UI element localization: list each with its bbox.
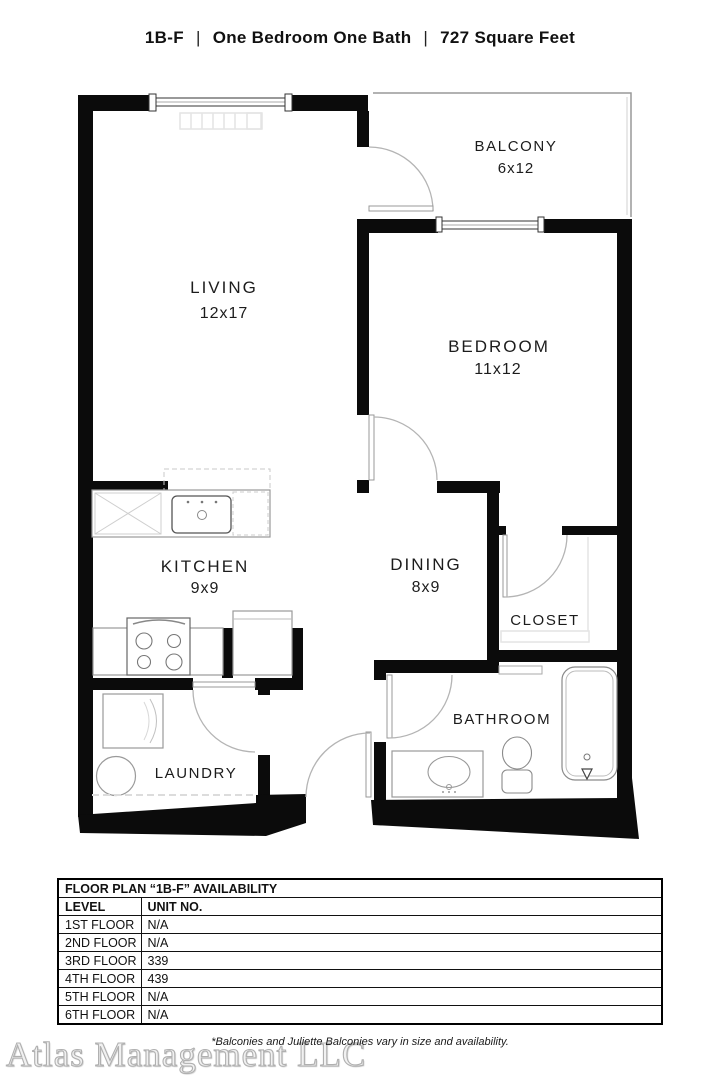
living-label: LIVING bbox=[190, 278, 258, 297]
balcony-disclaimer: *Balconies and Juliette Balconies vary i… bbox=[0, 1036, 720, 1048]
wall-segment bbox=[78, 678, 193, 690]
wall-segment bbox=[357, 219, 438, 233]
wall-segment bbox=[357, 111, 369, 147]
unit-cell: N/A bbox=[141, 1006, 662, 1025]
col-header-level: LEVEL bbox=[58, 898, 141, 916]
wall-segment bbox=[292, 628, 303, 678]
wall-segment bbox=[374, 742, 386, 800]
table-row: 6TH FLOOR N/A bbox=[58, 1006, 662, 1025]
bedroom-dims: 11x12 bbox=[474, 361, 521, 378]
wall-segment bbox=[290, 95, 368, 111]
unit-cell: N/A bbox=[141, 988, 662, 1006]
wall-segment bbox=[357, 219, 369, 415]
balcony-dims: 6x12 bbox=[498, 160, 535, 177]
wall-segment bbox=[374, 660, 499, 673]
living-dims: 12x17 bbox=[200, 305, 249, 322]
table-header-row: LEVEL UNIT NO. bbox=[58, 898, 662, 916]
water-heater bbox=[97, 757, 136, 796]
bathtub bbox=[562, 667, 617, 780]
laundry-label: LAUNDRY bbox=[155, 765, 238, 782]
entry-door bbox=[306, 732, 371, 797]
table-row: 3RD FLOOR 339 bbox=[58, 952, 662, 970]
bathroom-vanity bbox=[392, 751, 483, 797]
stove bbox=[93, 618, 223, 675]
level-cell: 2ND FLOOR bbox=[58, 934, 141, 952]
wall-segment bbox=[357, 480, 369, 493]
dining-dims: 8x9 bbox=[412, 579, 441, 596]
table-row: 2ND FLOOR N/A bbox=[58, 934, 662, 952]
level-cell: 3RD FLOOR bbox=[58, 952, 141, 970]
wall-segment bbox=[487, 481, 499, 660]
balcony-label: BALCONY bbox=[475, 138, 558, 155]
level-cell: 4TH FLOOR bbox=[58, 970, 141, 988]
wall-segment bbox=[617, 219, 632, 800]
col-header-unit: UNIT NO. bbox=[141, 898, 662, 916]
baseboard-heater bbox=[180, 113, 262, 129]
wall-segment bbox=[258, 682, 270, 695]
closet-label: CLOSET bbox=[510, 612, 580, 629]
unit-cell: 339 bbox=[141, 952, 662, 970]
kitchen-upper-cabinet bbox=[164, 469, 270, 491]
wall-segment bbox=[78, 95, 93, 817]
wall-segment bbox=[499, 650, 618, 662]
kitchen-dims: 9x9 bbox=[191, 580, 220, 597]
wall-segment bbox=[499, 526, 506, 535]
wall-segment bbox=[562, 526, 618, 535]
table-row: 1ST FLOOR N/A bbox=[58, 916, 662, 934]
toilet bbox=[502, 737, 532, 793]
closet-door bbox=[503, 535, 567, 597]
refrigerator bbox=[233, 611, 292, 675]
level-cell: 5TH FLOOR bbox=[58, 988, 141, 1006]
level-cell: 6TH FLOOR bbox=[58, 1006, 141, 1025]
unit-cell: N/A bbox=[141, 934, 662, 952]
balcony-railing bbox=[373, 93, 631, 217]
table-row: 4TH FLOOR 439 bbox=[58, 970, 662, 988]
kitchen-label: KITCHEN bbox=[161, 557, 250, 576]
availability-table: FLOOR PLAN “1B-F” AVAILABILITY LEVEL UNI… bbox=[57, 878, 663, 1025]
unit-cell: N/A bbox=[141, 916, 662, 934]
wall-segment bbox=[222, 628, 233, 678]
table-row: 5TH FLOOR N/A bbox=[58, 988, 662, 1006]
living-window bbox=[149, 94, 292, 111]
dining-label: DINING bbox=[390, 555, 462, 574]
bathroom-shelf bbox=[499, 666, 542, 674]
table-title: FLOOR PLAN “1B-F” AVAILABILITY bbox=[58, 879, 662, 898]
balcony-door bbox=[369, 147, 433, 211]
wall-bottom-left bbox=[78, 794, 306, 836]
table-title-row: FLOOR PLAN “1B-F” AVAILABILITY bbox=[58, 879, 662, 898]
level-cell: 1ST FLOOR bbox=[58, 916, 141, 934]
bedroom-door bbox=[369, 415, 437, 480]
bedroom-window bbox=[436, 217, 544, 232]
wall-segment bbox=[374, 660, 386, 680]
bathroom-label: BATHROOM bbox=[453, 711, 551, 728]
kitchen-sink bbox=[172, 496, 231, 533]
bedroom-label: BEDROOM bbox=[448, 337, 550, 356]
laundry-door bbox=[193, 682, 255, 752]
bathroom-door bbox=[387, 675, 452, 738]
unit-cell: 439 bbox=[141, 970, 662, 988]
floor-plan-page: 1B-F | One Bedroom One Bath | 727 Square… bbox=[0, 0, 720, 1080]
washer bbox=[103, 694, 163, 748]
